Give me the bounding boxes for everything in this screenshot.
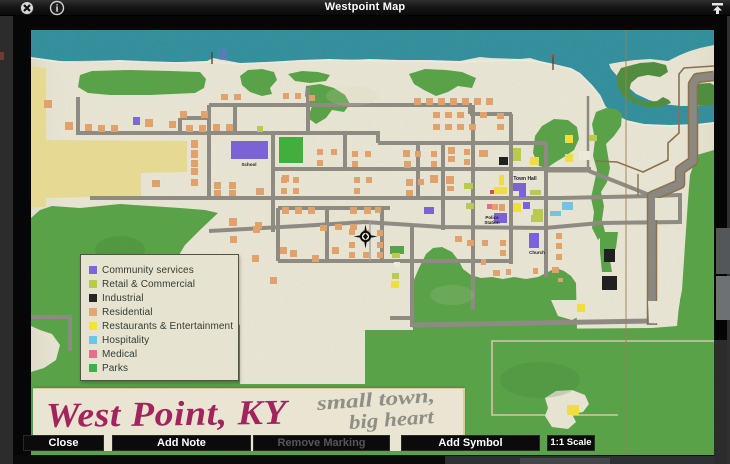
- svg-text:Station: Station: [484, 220, 500, 225]
- svg-text:School: School: [241, 162, 256, 167]
- svg-text:Church: Church: [529, 250, 545, 255]
- svg-text:Town Hall: Town Hall: [513, 176, 537, 182]
